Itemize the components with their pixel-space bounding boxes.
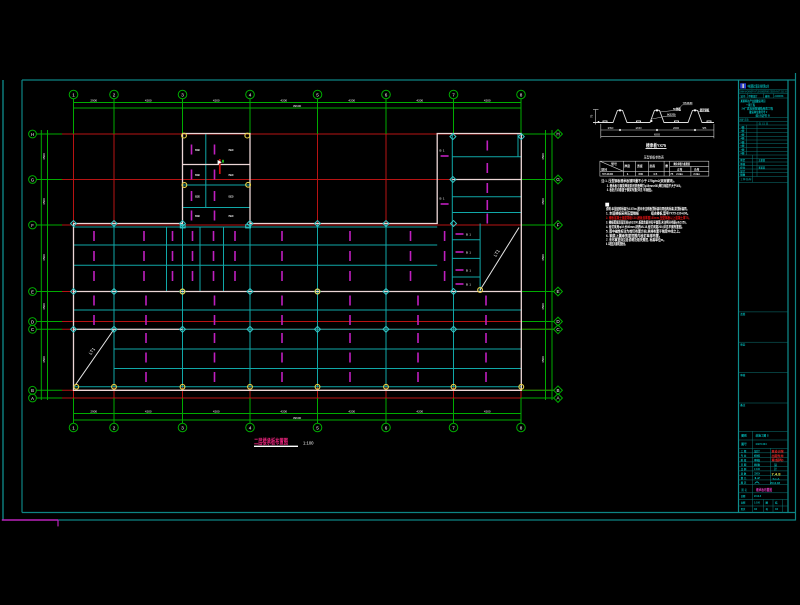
svg-text:镀锌钢板: 镀锌钢板 [700,108,710,112]
svg-text:G: G [31,177,34,182]
svg-text:图别: 图别 [741,434,747,438]
svg-text:1: 1 [72,93,75,98]
svg-text:150: 150 [607,126,614,130]
svg-text:年 月 日: 年 月 日 [759,121,769,125]
svg-text:6: 6 [385,426,388,431]
svg-text:A: A [31,396,34,401]
svg-text:G: G [556,177,560,182]
svg-text:页次: 页次 [740,507,746,511]
svg-text:工 程: 工 程 [741,449,747,453]
svg-text:F: F [31,223,34,228]
svg-text:600: 600 [639,172,644,176]
svg-text:正弯: 正弯 [677,167,682,171]
svg-text:D: D [31,319,34,324]
svg-text:比例: 比例 [741,501,746,505]
svg-text:4200: 4200 [213,409,220,413]
svg-text:CHINA MACHINERY INTL ENGINEERI: CHINA MACHINERY INTL ENGINEERING DESIGN … [739,91,787,94]
svg-text:二层楼承板布置图: 二层楼承板布置图 [254,437,288,446]
svg-text:1: 1 [72,426,75,431]
svg-text:项目: 项目 [600,167,607,171]
svg-text:肋高: 肋高 [649,164,656,168]
svg-text:B1: B1 [466,232,471,236]
svg-text:B1: B1 [466,268,471,272]
svg-text:出图专用章:: 出图专用章: [740,118,750,122]
svg-text:YX75-230-600: YX75-230-600 [602,172,613,176]
svg-text:B1: B1 [466,250,471,254]
svg-text:4500: 4500 [541,198,545,205]
svg-text:2: 2 [113,93,116,98]
svg-text:A: A [754,482,761,485]
svg-text:2.0kn: 2.0kn [693,172,700,176]
svg-text:B130: B130 [229,214,234,218]
svg-text:证书: 证书 [741,94,746,98]
svg-text:F: F [557,223,560,228]
svg-text:日期: 日期 [741,494,746,498]
svg-text:版 次: 版 次 [741,481,747,485]
svg-text:2. 楼承板与钢梁焊接采用穿透焊钉φ19mm×80,焊钉间距: 2. 楼承板与钢梁焊接采用穿透焊钉φ19mm×80,焊钉间距不大于300。 [607,183,683,188]
svg-text:3: 3 [181,426,184,431]
svg-text:2900: 2900 [90,98,97,102]
svg-text:4200: 4200 [145,98,152,102]
svg-text:4200: 4200 [213,98,220,102]
svg-text:张 数: 张 数 [741,472,747,476]
svg-text:1:100: 1:100 [754,468,761,471]
svg-text:章(结构): 章(结构) [772,457,784,462]
svg-text:剩余承载力极限值: 剩余承载力极限值 [674,162,691,166]
svg-text:出图专用: 出图专用 [772,453,784,458]
svg-text:王某某: 王某某 [759,158,766,162]
svg-text:某设计院: 某设计院 [772,449,785,454]
svg-text:4.5: 4.5 [653,172,658,176]
svg-text:B: B [556,388,559,393]
svg-text:组合楼板,型号YX75-230-600。: 组合楼板,型号YX75-230-600。 [651,211,690,216]
svg-text:注:1. 压型钢板楼承板镀锌量不小于 275g/m2(双面镀: 注:1. 压型钢板楼承板镀锌量不小于 275g/m2(双面镀锌)。 [601,178,676,183]
svg-text:比 例: 比 例 [741,467,747,471]
svg-text:制图: 制图 [740,173,745,177]
svg-text:4500: 4500 [42,356,46,363]
svg-text:YX75-230-600: YX75-230-600 [683,101,693,105]
svg-text:4500: 4500 [42,303,46,310]
svg-text:200: 200 [673,126,680,130]
svg-text:会签: 会签 [740,312,745,316]
svg-text:4200: 4200 [484,98,491,102]
svg-text:4500: 4500 [42,254,46,261]
svg-text:39600: 39600 [293,416,302,420]
svg-text:S.I.A: S.I.A [773,477,780,481]
svg-text:备注: 备注 [739,403,745,407]
svg-text:4. 栓钉采用φ19,长80mm,材质ML15,栓钉间距20: 4. 栓钉采用φ19,长80mm,材质ML15,栓钉间距200,详见平面布置图。 [606,224,684,229]
svg-text:4200: 4200 [348,409,355,413]
svg-text:5. 图中磁性标注为栓钉布置方向,单排布置于钢梁中线之上。: 5. 图中磁性标注为栓钉布置方向,单排布置于钢梁中线之上。 [606,229,682,234]
svg-text:设计: 设计 [754,449,761,453]
svg-text:图号: 图号 [741,442,747,446]
svg-text:B130: B130 [229,173,234,177]
svg-text:4500: 4500 [541,153,545,160]
svg-text:7: 7 [452,426,455,431]
svg-text:4: 4 [249,426,252,431]
svg-text:工种 结构: 工种 结构 [740,177,752,181]
svg-text:宽度: 宽度 [636,164,643,168]
svg-text:2013.08: 2013.08 [770,481,781,485]
svg-text:专 业: 专 业 [741,453,747,457]
svg-text:5: 5 [316,93,319,98]
svg-text:H: H [31,132,34,137]
svg-text:1:100: 1:100 [754,502,761,505]
svg-text:审核: 审核 [740,373,745,377]
svg-text:4200: 4200 [348,98,355,102]
svg-text:6: 6 [385,93,388,98]
svg-text:H: H [556,132,559,137]
svg-text:甲级设计: 甲级设计 [749,94,759,98]
svg-text:E: E [556,289,559,294]
svg-text:4200: 4200 [416,98,423,102]
svg-text:4500: 4500 [541,254,545,261]
svg-text:设计: 设计 [740,169,745,173]
svg-text:厚度: 厚度 [623,164,630,168]
svg-text:B130: B130 [229,194,234,198]
svg-text:B130: B130 [195,214,200,218]
svg-text:说明:本层结构标高为3.570m,图中未注明板顶标高均同结构: 说明:本层结构标高为3.570m,图中未注明板顶标高均同结构标高,梁顶标高同。 [606,206,689,211]
svg-text:楼承板布置图: 楼承板布置图 [756,487,772,492]
svg-text:8. 本图应与建筑图配合。: 8. 本图应与建筑图配合。 [606,241,627,246]
svg-text:C: C [31,327,34,332]
svg-text:9(125): 9(125) [667,113,676,117]
svg-text:B130: B130 [195,194,200,198]
svg-text:A1430001: A1430001 [775,95,785,98]
svg-text:4200: 4200 [280,98,287,102]
svg-text:50厚板: 50厚板 [673,107,681,111]
svg-text:审核: 审核 [754,458,761,462]
svg-text:4: 4 [249,93,252,98]
svg-text:审核: 审核 [740,162,745,166]
svg-text:编号: 编号 [765,94,770,98]
svg-text:2013.8: 2013.8 [754,495,762,498]
svg-text:4200: 4200 [280,409,287,413]
svg-text:200: 200 [636,126,643,130]
svg-text:B: B [31,388,34,393]
svg-text:审定: 审定 [740,343,745,347]
svg-text:8: 8 [520,426,523,431]
svg-text:8: 8 [520,93,523,98]
svg-text:4200: 4200 [484,409,491,413]
svg-text:B1: B1 [440,149,445,153]
svg-text:日 期: 日 期 [741,462,747,466]
svg-text:压型钢板参数表: 压型钢板参数表 [644,154,665,159]
svg-text:B1: B1 [466,282,471,286]
svg-text:B1: B1 [440,197,445,201]
svg-text:39600: 39600 [293,104,302,108]
svg-text:B130: B130 [229,148,234,152]
svg-text:B130: B130 [195,148,200,152]
svg-text:4500: 4500 [42,198,46,205]
svg-text:4500: 4500 [541,356,545,363]
svg-text:型号: 型号 [611,162,617,166]
svg-text:李某某: 李某某 [758,165,766,169]
svg-text:2: 2 [113,426,116,431]
svg-text:楼承板YX75: 楼承板YX75 [646,142,666,149]
svg-text:1. 本层楼板采用压型钢板: 1. 本层楼板采用压型钢板 [606,211,639,216]
svg-text:第 几: 第 几 [741,476,747,480]
svg-text:设计证号 B: 设计证号 B [755,112,770,117]
svg-text:2.0kn: 2.0kn [676,172,683,176]
svg-text:图 名: 图 名 [741,488,747,492]
svg-text:批准: 批准 [754,462,761,466]
svg-text:3. 楼板配筋双层双向φ8@200,板面负筋详见平面图,未注: 3. 楼板配筋双层双向φ8@200,板面负筋详见平面图,未注明分布筋φ8@250… [606,220,688,225]
svg-text:校对: 校对 [740,165,745,169]
svg-text:2900: 2900 [90,409,97,413]
svg-text:3. 板肋方向垂直于钢梁布置(详见 平面图)。: 3. 板肋方向垂直于钢梁布置(详见 平面图)。 [607,187,654,192]
svg-text:审定: 审定 [740,158,745,162]
svg-text:3: 3 [181,93,184,98]
svg-text:GS73-034: GS73-034 [756,442,767,446]
svg-text:2. 楼板混凝土强度等级C30,楼板总厚度150mm,压型钢: 2. 楼板混凝土强度等级C30,楼板总厚度150mm,压型钢板以上混凝土厚75。 [606,215,691,220]
svg-text:重: 重 [665,164,668,168]
svg-text:负弯: 负弯 [694,167,699,171]
svg-text:B130: B130 [195,173,200,177]
svg-text:5: 5 [316,426,319,431]
svg-text:7.4.8: 7.4.8 [772,472,781,476]
svg-text:95: 95 [702,126,707,130]
svg-text:计: 计 [774,467,777,471]
svg-text:7: 7 [452,93,455,98]
svg-text:E: E [31,289,34,294]
svg-text:75: 75 [590,114,594,118]
svg-text:结施工图 S: 结施工图 S [755,434,769,438]
svg-text:4200: 4200 [145,409,152,413]
svg-text:阶 段: 阶 段 [741,458,747,462]
svg-text:校核: 校核 [754,453,761,457]
svg-text:75: 75 [670,172,673,176]
svg-text:4500: 4500 [541,303,545,310]
svg-text:中机国际工程设计研究院公司: 中机国际工程设计研究院公司 [747,83,769,88]
svg-text:4200: 4200 [416,409,423,413]
svg-text:600: 600 [654,133,661,137]
svg-text:1:100: 1:100 [303,440,314,445]
svg-text:4500: 4500 [42,153,46,160]
